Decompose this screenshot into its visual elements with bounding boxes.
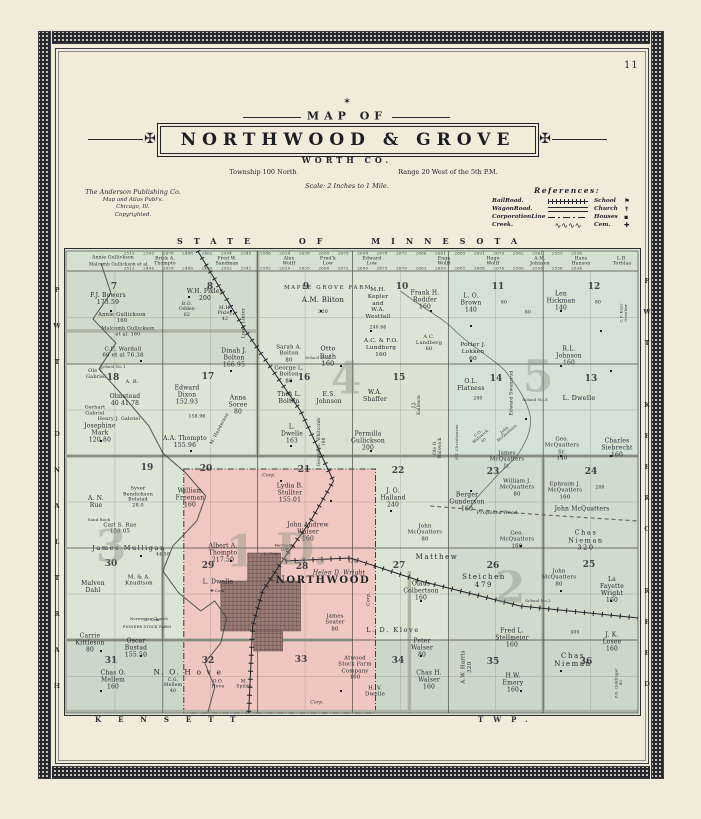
parcel-label: A. B.: [125, 380, 138, 386]
house-marker-icon: [560, 590, 562, 592]
parcel-label: Oscar Bustad 155.50: [125, 637, 147, 658]
parcel-label: Louis Linter: [241, 308, 246, 338]
house-marker-icon: [340, 365, 342, 367]
house-marker-icon: [520, 545, 522, 547]
parcel-label: John McQuatters 80: [542, 568, 577, 587]
section-number: 17: [202, 372, 215, 382]
legend-label-wagonroad: WagonRoad.: [492, 206, 548, 212]
parcel-label: Fred W. Sandman: [216, 257, 239, 268]
parcel-label: William J. McQuatters 80: [500, 478, 535, 497]
section-number: 18: [107, 373, 120, 383]
parcel-label: 158.96: [189, 414, 206, 419]
parcel-label: C.E. Wardall 60 et al 76.38: [102, 347, 143, 360]
house-marker-icon: [610, 370, 612, 372]
legend-row: CorporationLine Houses ▪: [492, 213, 642, 221]
parcel-label: Fred'k Low: [320, 257, 336, 268]
parcel-label: C.O. Walswick 40: [469, 426, 493, 449]
section-number: 34: [392, 656, 405, 666]
legend-row: Creek. ∿∿∿∿ Cem. ✚: [492, 221, 642, 229]
house-marker-icon: [560, 365, 562, 367]
parcel-label: Corp.: [262, 473, 276, 478]
house-marker-icon: [140, 555, 142, 557]
house-marker-icon: [290, 380, 292, 382]
parcel-label: PIONEER STOCK FARM: [123, 625, 171, 629]
parcel-label: L. Cem.: [145, 618, 161, 622]
parcel-label: L. Dwelle: [203, 578, 234, 585]
parcel-label: Alex Wolff: [283, 257, 296, 268]
parcel-label: M. Henderson: [209, 412, 230, 445]
house-marker-icon: [560, 455, 562, 457]
parcel-label: M. Spilde: [236, 680, 252, 691]
map-labels-layer: 7891011121817161514131920212223243029282…: [65, 249, 640, 715]
parcel-label: Ole T. Gabriel: [86, 369, 106, 381]
parcel-label: O.O. Hove: [212, 680, 225, 691]
section-number: 19: [141, 463, 154, 473]
house-marker-icon: [420, 600, 422, 602]
legend-row: RailRoad. School ⚑: [492, 197, 642, 205]
parcel-label: Gerhart Gabriel: [85, 405, 106, 416]
house-marker-icon: [230, 560, 232, 562]
section-number: 32: [202, 656, 215, 666]
parcel-label: Ephraim J. McQuatters 160: [548, 481, 583, 500]
parcel-label: 80: [595, 300, 601, 305]
parcel-label: F.T. Christianson: [455, 424, 459, 460]
parcel-label: H. V. Dwelle: [365, 686, 385, 699]
legend-label-corporation: CorporationLine: [492, 214, 548, 220]
section-number: 22: [392, 466, 405, 476]
atlas-page: 11 ✶ MAP OF ✠ ✠ NORTHWOOD & GROVE WORTH …: [0, 0, 701, 819]
house-marker-icon: [290, 445, 292, 447]
title-arrow-right: [552, 139, 607, 140]
title-kicker: MAP OF: [307, 110, 387, 123]
border-ornament-bottom: [37, 765, 665, 780]
county-subtitle: WORTH CO.: [302, 155, 392, 165]
township-note: Township 100 North: [229, 168, 296, 176]
parcel-label: Chas Nieman: [554, 652, 591, 669]
section-number: 13: [585, 374, 598, 384]
publisher-line: The Anderson Publishing Co.: [78, 188, 188, 197]
parcel-label: F.J. Bowers 173.59: [90, 292, 126, 306]
bleedthrough-numeral: 3: [96, 522, 127, 573]
house-marker-icon: [100, 440, 102, 442]
house-marker-icon: [330, 500, 332, 502]
parcel-label: Annie Gullickson 160: [98, 312, 146, 324]
parcel-label: A.M. Bliton: [302, 296, 344, 304]
publisher-line: Map and Atlas Publ's.: [78, 197, 188, 204]
railroad-line-icon: [548, 199, 588, 204]
section-number: 27: [393, 561, 406, 571]
house-marker-icon: [610, 600, 612, 602]
title-star-ornament: ✶: [343, 97, 351, 107]
west-border-label: P W T D N A L T R A H: [51, 272, 63, 704]
section-number: 12: [588, 282, 601, 292]
legend-heading: References:: [492, 186, 642, 195]
parcel-label: L. O. Brown 140: [461, 292, 482, 313]
section-number: 35: [487, 657, 500, 667]
township-plat-map: 7891011121817161514131920212223243029282…: [64, 248, 641, 716]
title-cross-left-icon: ✠: [144, 131, 156, 147]
parcel-label: Dinah J. Bolton 166.95: [221, 347, 246, 368]
house-marker-icon: [230, 310, 232, 312]
parcel-label: 80: [501, 300, 507, 305]
parcel-label: John McQuatters 80: [408, 523, 443, 542]
parcel-label: William Freeman 160: [176, 487, 205, 508]
parcel-label: M.H. Pixley 42: [218, 306, 233, 322]
bleedthrough-numeral: 2: [495, 563, 526, 614]
title-box: NORTHWOOD & GROVE: [160, 126, 536, 154]
border-ornament-top: [37, 30, 665, 45]
parcel-label: M.H. Kepler and W.A. Westfall: [365, 287, 390, 321]
title-flourish-right: [392, 117, 450, 118]
border-ornament-left: [37, 30, 52, 780]
parcel-label: George L. Bolton 80: [274, 365, 303, 384]
parcel-label: A.M. Johnson: [530, 257, 550, 268]
parcel-label: Olaus Colbertson 160: [403, 580, 438, 601]
parcel-label: A. N. Rue: [88, 495, 104, 509]
house-marker-icon: [230, 370, 232, 372]
section-number: 33: [295, 655, 308, 665]
parcel-label: 400: [570, 630, 579, 635]
parcel-label: James Seater 80: [325, 613, 344, 632]
parcel-label: Frank H. Rodifer 160: [411, 289, 440, 310]
parcel-label: C.G. Mellem 40: [164, 678, 182, 694]
parcel-label: Anna Soree 80: [229, 394, 248, 415]
house-marker-icon: [340, 690, 342, 692]
parcel-label: O.L. Flatness: [457, 378, 484, 392]
parcel-label: Ole O. Walswick: [433, 437, 443, 458]
house-marker-icon: [370, 450, 372, 452]
parcel-label: 80: [525, 310, 531, 315]
parcel-label: Matthew: [416, 553, 459, 561]
parcel-label: 240.66: [370, 325, 387, 330]
parcel-label: J. O. Halland 240: [380, 487, 405, 508]
parcel-label: 2519 2500 2476 2488 2462 2504 2545 2586 …: [73, 252, 633, 257]
parcel-label: School No.2: [525, 599, 551, 603]
parcel-label: L.B. Torblaa: [613, 257, 632, 268]
house-marker-icon: [280, 480, 282, 482]
parcel-label: Charles Siebrecht 160: [601, 437, 632, 458]
parcel-label: Chas H. Walser 160: [416, 669, 442, 690]
wagonroad-line-icon: [548, 207, 588, 212]
parcel-label: 2513 2496 2478 2486 2465 2502 2541 2582 …: [73, 267, 633, 272]
title-cross-right-icon: ✠: [539, 131, 551, 147]
house-marker-icon: [420, 655, 422, 657]
parcel-label: Edward Dixon 152.93: [175, 384, 200, 405]
parcel-label: R.L. Johnson 160: [556, 345, 582, 366]
legend-label-creek: Creek.: [492, 222, 548, 228]
parcel-label: P.O. Guldinger 80: [615, 668, 624, 698]
house-marker-icon: [140, 655, 142, 657]
parcel-label: W.H. Pixley 200: [187, 288, 223, 302]
parcel-label: W.A. Shaffer: [363, 389, 387, 403]
parcel-label: NORTHWOOD: [276, 575, 371, 587]
bleedthrough-numeral: 5: [523, 352, 554, 403]
parcel-label: Olmstead 40 41.78: [110, 393, 141, 407]
parcel-label: N. O. H o v e: [153, 669, 222, 678]
parcel-label: George H. Whitcomb 160: [317, 418, 327, 466]
house-marker-icon: [190, 450, 192, 452]
range-note: Range 20 West of the 5th P.M.: [398, 168, 497, 176]
section-number: 10: [396, 282, 409, 292]
parcel-label: Malcomb Gullickson et al. 160: [101, 326, 154, 337]
creek-line-icon: ∿∿∿∿: [548, 223, 588, 228]
parcel-label: Annie Gullickson: [92, 255, 134, 260]
parcel-label: Edward Low: [363, 257, 382, 268]
parcel-label: Atwood Stock Farm Company 160: [338, 655, 371, 681]
section-number: 25: [583, 560, 596, 570]
parcel-label: MAPLE GROVE FARM: [284, 285, 372, 291]
east-border-label: P W T K E E R C R E E D: [641, 266, 653, 700]
map-legend: References: RailRoad. School ⚑ WagonRoad…: [492, 186, 642, 229]
north-border-label: STATE OF MINNESOTA: [64, 236, 641, 246]
parcel-label: Malven Dahl: [81, 580, 105, 594]
parcel-label: Chas Nieman 320: [559, 530, 613, 553]
parcel-label: A.C. & F.O. Lundberg 160: [364, 338, 398, 358]
house-marker-icon: [600, 330, 602, 332]
parcel-label: Peter Walser 80: [411, 637, 433, 658]
section-number: 7: [111, 282, 117, 292]
house-marker-icon: [110, 310, 112, 312]
house-marker-icon: [188, 296, 190, 298]
school-symbol-icon: ⚑: [624, 197, 630, 205]
parcel-label: A.C. Lundberg 60: [416, 335, 442, 353]
parcel-label: Thos L. Bolton: [277, 391, 301, 405]
legend-label-school: School: [594, 198, 624, 204]
parcel-label: Len Hickman 140: [547, 290, 576, 311]
publisher-line: Copyrighted.: [78, 212, 188, 219]
section-number: 14: [490, 374, 503, 384]
parcel-label: L. Dwelle 163: [281, 423, 303, 444]
parcel-label: Enga Wolff: [438, 257, 451, 268]
house-marker-icon: [560, 670, 562, 672]
house-marker-icon: [430, 310, 432, 312]
legend-label-railroad: RailRoad.: [492, 198, 548, 204]
house-marker-icon: [520, 690, 522, 692]
legend-label-houses: Houses: [594, 214, 624, 220]
parcel-label: James McQuatters Jr.: [490, 450, 525, 469]
cem-symbol-icon: ✚: [624, 221, 629, 229]
church-symbol-icon: ✝: [624, 205, 629, 213]
houses-symbol-icon: ▪: [624, 213, 628, 221]
parcel-label: 44.50: [156, 552, 170, 557]
legend-row: WagonRoad. Church ✝: [492, 205, 642, 213]
house-marker-icon: [470, 325, 472, 327]
parcel-label: C.P. Knor Grenlow: [620, 303, 629, 322]
parcel-label: Chas O. Mellem 160: [101, 669, 126, 690]
section-number: 11: [492, 282, 505, 292]
house-marker-icon: [320, 310, 322, 312]
scale-note: Scale: 2 Inches to 1 Mile.: [305, 182, 389, 190]
parcel-label: John McQuatters: [494, 421, 519, 444]
legend-label-cem: Cem.: [594, 222, 624, 228]
parcel-label: ✚ Cem.: [210, 589, 226, 593]
parcel-label: La Fayette Wright 160: [598, 576, 626, 604]
parcel-label: Edward Swensrud: [509, 371, 514, 416]
page-number: 11: [624, 60, 639, 71]
house-marker-icon: [140, 360, 142, 362]
bleedthrough-numeral: D.: [276, 525, 328, 576]
parcel-label: 200: [595, 485, 604, 490]
parcel-label: John McQuatters: [555, 505, 610, 512]
parcel-label: Hugo Wolff: [486, 257, 499, 268]
house-marker-icon: [470, 360, 472, 362]
parcel-label: Permilla Gullickson 200: [351, 430, 385, 451]
house-marker-icon: [470, 490, 472, 492]
title-arrow-left: [88, 139, 143, 140]
south-border-label-kensett: KENSETT: [95, 715, 252, 724]
parcel-label: 320: [347, 559, 356, 564]
house-marker-icon: [610, 455, 612, 457]
section-number: 21: [298, 465, 311, 475]
parcel-label: Geo. McQuatters 160: [500, 530, 535, 549]
section-number: 31: [105, 656, 118, 666]
parcel-label: J. K. Losee 160: [603, 631, 622, 652]
parcel-label: Corp.: [366, 592, 371, 606]
parcel-label: Fred L. Stellmeier 160: [495, 627, 529, 648]
corporation-line-icon: [548, 216, 588, 218]
parcel-label: L. Dwelle: [563, 395, 596, 403]
map-title: NORTHWOOD & GROVE: [181, 130, 516, 150]
house-marker-icon: [525, 418, 527, 420]
section-number: 24: [585, 467, 598, 477]
bleedthrough-numeral: 4: [331, 354, 362, 405]
parcel-label: Hans Hanson: [572, 257, 591, 268]
publisher-imprint: The Anderson Publishing Co. Map and Atla…: [78, 188, 188, 219]
parcel-label: Syver Bendickson Bolstad 28.0: [123, 487, 153, 510]
section-number: 15: [393, 373, 406, 383]
parcel-label: Corp.: [310, 700, 324, 705]
parcel-label: A.W. Harris 320: [461, 650, 474, 683]
parcel-label: Proposed Road.: [477, 511, 520, 517]
parcel-label: M. & A. Knudtson: [125, 575, 153, 588]
parcel-label: 200: [473, 396, 482, 401]
parcel-label: J.J. Kalleson: [412, 395, 422, 415]
parcel-label: Malcomb Gullickson et al.: [89, 263, 149, 268]
parcel-label: Potter J. Lokken 60: [460, 342, 485, 362]
legend-label-church: Church: [594, 206, 624, 212]
house-marker-icon: [100, 690, 102, 692]
title-flourish-left: [243, 117, 301, 118]
parcel-label: Lydia B. Stullter 155.01: [277, 482, 303, 503]
house-marker-icon: [390, 510, 392, 512]
house-marker-icon: [370, 330, 372, 332]
parcel-label: Sarah A. Bolton 80: [276, 344, 302, 363]
house-marker-icon: [100, 650, 102, 652]
parcel-label: L. D. Klove: [366, 627, 420, 635]
section-number: 20: [200, 464, 213, 474]
bleedthrough-numeral: 1: [226, 527, 257, 578]
parcel-label: B.O. Odden 62: [179, 302, 195, 318]
parcel-label: Brick A. Thompto: [154, 257, 176, 268]
south-border-label-twp: TWP.: [478, 715, 538, 724]
house-marker-icon: [560, 310, 562, 312]
parcel-label: Geo. McQuatters Sr. 140: [545, 436, 580, 462]
publisher-line: Chicago, Ill.: [78, 204, 188, 211]
parcel-label: A.A. Thompto 155.96: [163, 435, 207, 449]
